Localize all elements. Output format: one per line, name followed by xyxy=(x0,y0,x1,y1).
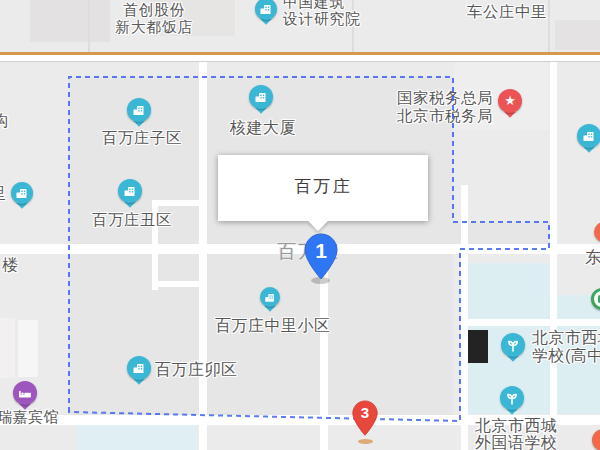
sprout-icon xyxy=(506,339,520,352)
poi-label-ruijia: 瑞嘉宾馆 xyxy=(0,408,59,425)
road xyxy=(320,268,328,450)
building-light xyxy=(0,318,15,378)
marker-gaozhong-school[interactable] xyxy=(501,333,525,357)
building-icon xyxy=(123,185,137,197)
road-minor xyxy=(152,281,207,287)
building-icon xyxy=(264,292,276,303)
map-pin-1[interactable]: 1 xyxy=(304,233,338,281)
info-popup[interactable]: 百万庄 xyxy=(218,155,428,221)
building-icon xyxy=(254,91,268,103)
poi-label-shuiwuju: 国家税务总局 北京市税务局 xyxy=(397,89,493,125)
label-line: 北京市西城 xyxy=(532,329,600,346)
water-zone xyxy=(77,424,197,450)
marker-edge-orange2[interactable] xyxy=(592,429,600,450)
poi-label-chouqu: 百万庄丑区 xyxy=(92,211,172,228)
building-icon xyxy=(132,104,146,116)
marker-right-edge[interactable] xyxy=(577,124,600,148)
pin-number: 1 xyxy=(304,239,338,263)
road xyxy=(461,185,468,450)
marker-zhongli[interactable] xyxy=(260,287,280,307)
road xyxy=(199,62,207,450)
poi-label-zhongli: 百万庄中里小区 xyxy=(215,317,331,334)
building-icon xyxy=(132,362,146,374)
road-minor xyxy=(461,319,600,326)
poi-label-waiguoyu: 北京市西城 外国语学校 xyxy=(475,417,558,450)
building-dark xyxy=(468,330,488,363)
poi-label-li: 里 xyxy=(0,185,7,202)
label-line: 北京市西城 xyxy=(475,417,558,434)
poi-label-dong: 东 xyxy=(585,249,600,266)
sprout-icon xyxy=(505,392,519,405)
marker-maoqu[interactable] xyxy=(127,356,151,380)
marker-hejian[interactable] xyxy=(249,85,273,109)
pin-shadow xyxy=(358,439,373,444)
poi-label-lou: 楼 xyxy=(2,256,19,273)
marker-left-edge[interactable] xyxy=(11,182,33,204)
marker-ruijia-hotel[interactable] xyxy=(13,381,37,405)
road-minor xyxy=(548,0,550,52)
pin-number: 3 xyxy=(352,404,378,421)
label-line: 设计研究院 xyxy=(283,10,361,27)
star-icon: ★ xyxy=(504,94,516,107)
building xyxy=(30,0,110,42)
building-icon xyxy=(582,130,596,142)
label-line: 北京市税务局 xyxy=(397,107,493,124)
poi-label-gaozhongbu: 北京市西城 学校(高中部 xyxy=(532,329,600,365)
road-arterial xyxy=(0,52,600,62)
bed-icon xyxy=(18,388,32,399)
marker-chouqu[interactable] xyxy=(118,179,142,203)
poi-label-ziqu: 百万庄子区 xyxy=(102,129,182,146)
marker-waiguoyu-school[interactable] xyxy=(500,386,524,410)
road-minor xyxy=(152,200,207,206)
marker-shejiyuan[interactable] xyxy=(255,0,277,20)
poi-label-hejian: 核建大厦 xyxy=(230,119,296,136)
popup-title: 百万庄 xyxy=(218,155,428,219)
marker-shuiwuju[interactable]: ★ xyxy=(498,89,522,113)
building-icon xyxy=(15,187,29,199)
building xyxy=(555,20,600,50)
map-canvas[interactable]: 百万庄 首创股份 新大都饭店 中国建筑 设计研究院 车公庄中里 国家税务总局 北… xyxy=(0,0,600,450)
poi-label-gou: 沟 xyxy=(0,112,9,129)
marker-ziqu[interactable] xyxy=(127,98,151,122)
poi-label-shejiyuan: 中国建筑 设计研究院 xyxy=(283,0,361,27)
label-line: 新大都饭店 xyxy=(115,18,193,35)
building-light xyxy=(18,320,38,377)
label-line: 中国建筑 xyxy=(283,0,345,10)
label-line: 首创股份 xyxy=(123,1,185,18)
label-line: 国家税务总局 xyxy=(397,89,493,106)
marker-edge-orange[interactable] xyxy=(594,222,600,242)
label-line: 学校(高中部 xyxy=(532,347,600,364)
poi-label-maoqu: 百万庄卯区 xyxy=(155,361,238,378)
road-minor xyxy=(88,0,90,52)
marker-edge-green[interactable] xyxy=(591,288,600,310)
poi-label-shouchuang: 首创股份 新大都饭店 xyxy=(108,1,200,35)
poi-label-chegongzhuang: 车公庄中里 xyxy=(467,3,547,20)
label-line: 外国语学校 xyxy=(475,434,558,450)
map-pin-3[interactable]: 3 xyxy=(352,400,378,437)
building-icon xyxy=(259,3,273,15)
